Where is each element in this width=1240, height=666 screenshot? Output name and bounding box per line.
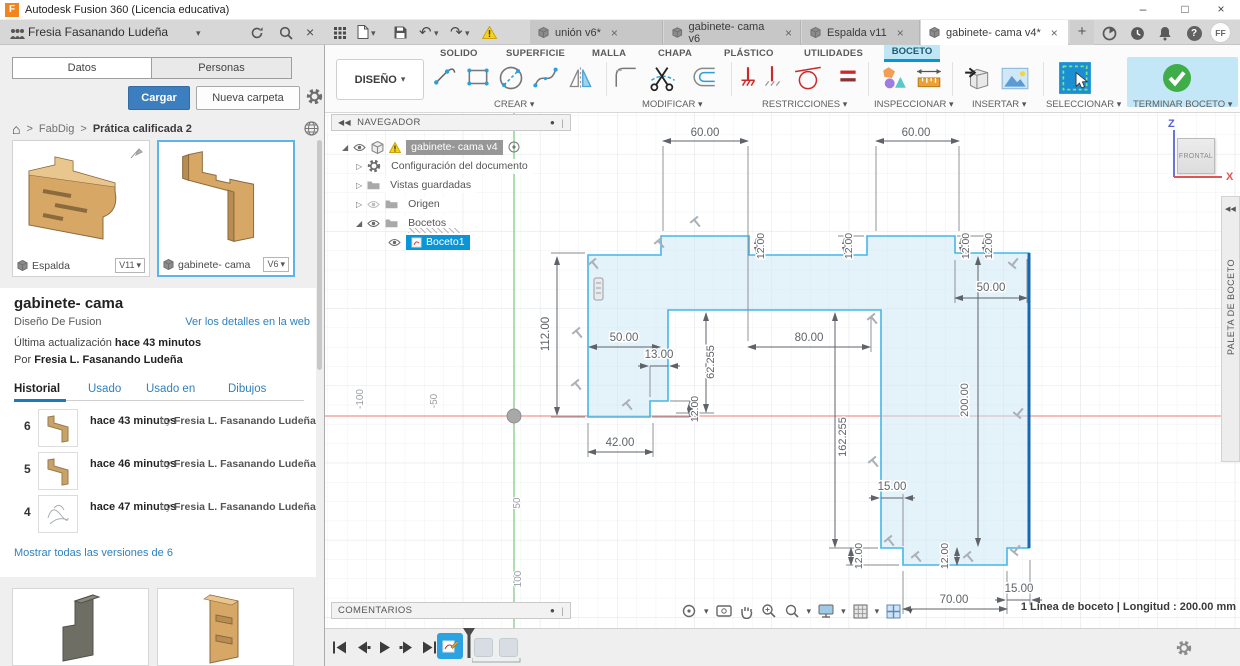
- zoom-fit-icon[interactable]: [784, 603, 800, 619]
- version-dropdown[interactable]: V6▾: [263, 257, 289, 272]
- folder-icon: [385, 199, 398, 209]
- warning-icon[interactable]: [482, 26, 497, 39]
- tab-historial[interactable]: Historial: [14, 383, 60, 395]
- version-thumbnail: [38, 495, 78, 533]
- chevron-down-icon[interactable]: ▾: [807, 606, 812, 617]
- folder-icon: [367, 180, 380, 190]
- project-item-thumbnail[interactable]: [157, 588, 294, 666]
- navigator-item-label[interactable]: Origen: [403, 197, 445, 212]
- account-menu[interactable]: Fresia Fasanando Ludeña: [28, 25, 168, 39]
- dim-label[interactable]: 50.00: [977, 282, 1006, 294]
- circle-tool-icon[interactable]: [497, 64, 525, 92]
- version-author: by Fresia L. Fasanando Ludeña: [160, 415, 316, 427]
- rectangle-tool-icon[interactable]: [465, 64, 491, 90]
- fixed-constraint-ruler-icon: [594, 278, 603, 300]
- close-tab-icon[interactable]: ×: [785, 26, 792, 40]
- chevron-down-icon[interactable]: ▾: [465, 28, 470, 39]
- timeline-ghost-feature[interactable]: [499, 638, 518, 657]
- comments-label: COMENTARIOS: [338, 605, 412, 616]
- cube-icon: [672, 27, 683, 38]
- boceto-tab-underline: [884, 59, 940, 62]
- image-icon[interactable]: [1000, 64, 1030, 92]
- dim-label[interactable]: 13.00: [645, 349, 674, 361]
- redo-icon[interactable]: ↷: [450, 23, 463, 41]
- navigator-header[interactable]: ◀◀ NAVEGADOR ● |: [331, 114, 571, 131]
- timeline-sketch-feature[interactable]: [437, 633, 463, 659]
- version-row[interactable]: 4 hace 47 minutos by Fresia L. Fasanando…: [0, 493, 316, 536]
- version-row[interactable]: 6 hace 43 minutos by Fresia L. Fasanando…: [0, 407, 316, 450]
- expand-palette-icon[interactable]: ◀◀: [1225, 205, 1236, 213]
- sketch-icon: [411, 237, 422, 248]
- viewcube-x-axis-label: X: [1226, 171, 1233, 183]
- help-icon[interactable]: ?: [1184, 23, 1204, 43]
- cube-icon: [17, 260, 28, 271]
- view-navigation-toolbar: ▾ ▾ ▾ ▾ ▾: [681, 603, 913, 619]
- collapsed-arrow-icon[interactable]: ▷: [356, 200, 362, 209]
- measure-icon[interactable]: [915, 64, 943, 92]
- breadcrumb-current[interactable]: Prática calificada 2: [93, 123, 192, 135]
- dim-label[interactable]: 60.00: [902, 127, 931, 139]
- doc-tab-union[interactable]: unión v6* ×: [530, 20, 663, 45]
- sketch-palette-strip[interactable]: ◀◀ PALETA DE BOCETO: [1221, 196, 1240, 462]
- chevron-down-icon: ▾: [196, 28, 201, 39]
- dim-label[interactable]: 12.00: [755, 233, 767, 259]
- tab-personas[interactable]: Personas: [151, 57, 292, 79]
- dim-label[interactable]: 42.00: [606, 437, 635, 449]
- navigator-item-sketch1[interactable]: Boceto1: [406, 235, 470, 250]
- save-icon[interactable]: [394, 26, 407, 39]
- app-grid-icon[interactable]: [334, 27, 346, 39]
- settings-gear-icon[interactable]: [306, 88, 323, 105]
- ribbon-tab-chapa[interactable]: CHAPA: [658, 48, 692, 59]
- dim-label[interactable]: 162.255: [837, 417, 849, 457]
- version-thumbnail: [38, 409, 78, 447]
- doc-tab-gabinete-v6[interactable]: gabinete- cama v6 ×: [664, 20, 801, 45]
- visibility-eye-icon[interactable]: [367, 219, 380, 228]
- doc-tab-espalda[interactable]: Espalda v11 ×: [802, 20, 920, 45]
- pan-hand-icon[interactable]: [739, 604, 754, 619]
- breadcrumb-sep: >: [80, 123, 86, 135]
- green-check-icon: [1161, 62, 1193, 94]
- group-terminar-menu[interactable]: TERMINAR BOCETO ▾: [1133, 99, 1232, 110]
- breadcrumb-root[interactable]: FabDig: [39, 123, 74, 135]
- project-item-thumbnail[interactable]: [12, 588, 149, 666]
- line-tool-icon[interactable]: [433, 64, 459, 90]
- ribbon-tab-boceto-active[interactable]: BOCETO: [884, 45, 940, 59]
- divider: [952, 62, 953, 96]
- doc-tab-label: gabinete- cama v4*: [946, 27, 1041, 39]
- flag-icon: [129, 147, 143, 159]
- inspect-shapes-icon[interactable]: [880, 64, 908, 92]
- web-details-link[interactable]: Ver los detalles en la web: [150, 316, 310, 328]
- chevron-down-icon[interactable]: ▾: [371, 28, 376, 39]
- dim-label[interactable]: 12.00: [939, 543, 951, 569]
- divider: [731, 62, 732, 96]
- sketch-palette-label: PALETA DE BOCETO: [1226, 259, 1236, 355]
- close-tab-icon[interactable]: ×: [897, 26, 904, 40]
- selection-status: 1 Línea de boceto | Longitud : 200.00 mm: [930, 601, 1236, 613]
- warning-icon: [389, 142, 401, 153]
- ribbon-tab-solido[interactable]: SOLIDO: [440, 48, 478, 59]
- fillet-tool-icon[interactable]: [613, 64, 639, 90]
- dim-label[interactable]: 80.00: [795, 332, 824, 344]
- tab-usado[interactable]: Usado: [88, 383, 121, 395]
- notifications-bell-icon[interactable]: [1155, 23, 1175, 43]
- group-modificar-menu[interactable]: MODIFICAR ▾: [642, 99, 702, 110]
- undo-icon[interactable]: ↶: [419, 23, 432, 41]
- dim-label[interactable]: 12.00: [983, 233, 995, 259]
- job-status-icon[interactable]: [1127, 23, 1147, 43]
- navigator-root-row[interactable]: ◢ gabinete- cama v4: [342, 138, 520, 156]
- cube-icon: [538, 27, 549, 38]
- navigator-item-label[interactable]: Configuración del documento: [386, 159, 533, 174]
- doc-tab-label: Espalda v11: [827, 27, 887, 39]
- chevron-down-icon[interactable]: ▾: [841, 606, 846, 617]
- new-folder-button[interactable]: Nueva carpeta: [196, 86, 300, 110]
- axis-tick-label: 100: [513, 570, 524, 587]
- extensions-icon[interactable]: [1099, 23, 1119, 43]
- dim-label[interactable]: 12.00: [853, 543, 865, 569]
- grid-settings-icon[interactable]: [853, 604, 868, 619]
- offset-tool-icon[interactable]: [690, 64, 720, 90]
- workspace-selector[interactable]: DISEÑO ▾: [336, 59, 424, 100]
- dim-label[interactable]: 62.255: [705, 345, 717, 379]
- equal-constraint-icon[interactable]: [836, 64, 860, 88]
- timeline-ghost-feature[interactable]: [474, 638, 493, 657]
- navigator-row-origin[interactable]: ▷ Origen: [356, 195, 445, 213]
- timeline-go-start-button[interactable]: [332, 640, 350, 655]
- detail-title: gabinete- cama: [14, 295, 123, 312]
- look-at-icon[interactable]: [716, 604, 732, 618]
- fix-constraint-icon[interactable]: [737, 64, 759, 90]
- divider: [868, 62, 869, 96]
- axis-tick-label: -100: [355, 389, 366, 409]
- project-item-gabinete-cama[interactable]: gabinete- cama V6▾: [157, 140, 295, 277]
- gabinete-thumbnail: [159, 142, 291, 254]
- navigator-row-sketch1[interactable]: Boceto1: [388, 233, 470, 251]
- doc-tab-gabinete-v4-active[interactable]: gabinete- cama v4* ×: [921, 20, 1068, 45]
- avatar[interactable]: FF: [1210, 22, 1231, 43]
- version-author: by Fresia L. Fasanando Ludeña: [160, 458, 316, 470]
- origin-point[interactable]: [507, 409, 521, 423]
- workspace-label: DISEÑO: [355, 74, 397, 86]
- search-icon[interactable]: [279, 26, 293, 40]
- gear-icon: [367, 159, 381, 173]
- sketch1-label: Boceto1: [426, 235, 465, 250]
- scrollbar[interactable]: [317, 140, 322, 370]
- close-panel-icon[interactable]: ×: [306, 24, 314, 40]
- title-bar: F Autodesk Fusion 360 (Licencia educativ…: [0, 0, 1240, 20]
- globe-icon[interactable]: [304, 121, 319, 136]
- display-settings-icon[interactable]: [818, 604, 834, 618]
- close-tab-icon[interactable]: ×: [1051, 26, 1058, 40]
- project-item-espalda[interactable]: Espalda V11▾: [12, 140, 150, 277]
- author-line: Por Fresia L. Fasanando Ludeña: [14, 354, 183, 366]
- tab-usado-en[interactable]: Usado en: [146, 383, 195, 395]
- mirror-tool-icon[interactable]: [567, 64, 594, 91]
- panel-menu-icon[interactable]: ●: [550, 118, 555, 127]
- panel-menu-icon[interactable]: ●: [550, 606, 555, 615]
- visibility-eye-off-icon[interactable]: [367, 200, 380, 209]
- show-all-versions-link[interactable]: Mostrar todas las versiones de 6: [14, 547, 173, 559]
- file-menu-icon[interactable]: [357, 25, 369, 39]
- item-name: gabinete- cama: [178, 259, 250, 271]
- select-tool-icon[interactable]: [1057, 60, 1093, 96]
- group-insertar-menu[interactable]: INSERTAR ▾: [972, 99, 1026, 110]
- navigator-root-item[interactable]: gabinete- cama v4: [406, 140, 502, 155]
- breadcrumb: ⌂ > FabDig > Prática calificada 2: [12, 121, 192, 137]
- ribbon-tab-superficie[interactable]: SUPERFICIE: [506, 48, 565, 59]
- fusion360-window: F Autodesk Fusion 360 (Licencia educativ…: [0, 0, 1240, 666]
- ribbon-tab-malla[interactable]: MALLA: [592, 48, 626, 59]
- divider: [1043, 62, 1044, 96]
- chevron-down-icon[interactable]: ▾: [908, 606, 913, 617]
- insert-icon[interactable]: [963, 64, 993, 92]
- divider: [606, 62, 607, 96]
- group-crear-menu[interactable]: CREAR ▾: [494, 99, 534, 110]
- group-seleccionar-menu[interactable]: SELECCIONAR ▾: [1046, 99, 1121, 110]
- viewports-icon[interactable]: [886, 604, 901, 619]
- app-title: Autodesk Fusion 360 (Licencia educativa): [25, 4, 229, 16]
- chevron-down-icon[interactable]: ▾: [704, 606, 709, 617]
- panel-handle[interactable]: |: [561, 606, 564, 616]
- trim-scissors-icon[interactable]: [648, 64, 678, 92]
- version-dropdown[interactable]: V11▾: [115, 258, 145, 273]
- dim-label[interactable]: 15.00: [878, 481, 907, 493]
- espalda-thumbnail: [13, 141, 147, 253]
- timeline-settings-gear-icon[interactable]: [1176, 640, 1192, 656]
- chevron-down-icon: ▾: [401, 74, 406, 85]
- group-restricciones-menu[interactable]: RESTRICCIONES ▾: [762, 99, 847, 110]
- dim-label[interactable]: 12.00: [843, 233, 855, 259]
- tangent-constraint-icon[interactable]: [793, 64, 825, 92]
- navigator-title: NAVEGADOR: [357, 117, 421, 128]
- refresh-icon[interactable]: [250, 26, 264, 40]
- navigator-row-doc-settings[interactable]: ▷ Configuración del documento: [356, 157, 533, 175]
- version-number: 6: [24, 419, 31, 433]
- updated-line: Última actualización hace 43 minutos: [14, 337, 201, 349]
- close-window-button[interactable]: ×: [1206, 0, 1236, 19]
- comments-bar[interactable]: COMENTARIOS ● |: [331, 602, 571, 619]
- visibility-eye-icon[interactable]: [388, 238, 401, 247]
- collapsed-arrow-icon[interactable]: ▷: [356, 162, 362, 171]
- data-panel: Datos Personas Cargar Nueva carpeta ⌂ > …: [0, 45, 325, 666]
- version-author: by Fresia L. Fasanando Ludeña: [160, 501, 316, 513]
- zoom-in-icon[interactable]: [761, 603, 777, 619]
- dim-label[interactable]: 12.00: [689, 396, 701, 422]
- chevron-down-icon[interactable]: ▾: [875, 606, 880, 617]
- timeline-play-button[interactable]: [377, 640, 395, 655]
- activate-radio-icon[interactable]: [508, 141, 520, 153]
- cube-icon: [371, 141, 384, 154]
- minimize-button[interactable]: –: [1128, 0, 1158, 19]
- navigator-item-label[interactable]: Vistas guardadas: [385, 178, 476, 193]
- expand-icon[interactable]: ◢: [356, 219, 362, 228]
- item-name: Espalda: [32, 260, 70, 272]
- home-icon[interactable]: ⌂: [12, 121, 20, 137]
- spline-tool-icon[interactable]: [532, 64, 559, 91]
- dim-label[interactable]: 112.00: [540, 317, 552, 351]
- version-number: 4: [24, 505, 31, 519]
- dim-label[interactable]: 60.00: [691, 127, 720, 139]
- sketch-feature-icon: [442, 638, 458, 654]
- dim-label[interactable]: 12.00: [960, 233, 972, 259]
- detail-subtitle: Diseño De Fusion: [14, 316, 101, 328]
- timeline-step-back-button[interactable]: [355, 640, 373, 655]
- version-thumbnail: [38, 452, 78, 490]
- tab-datos[interactable]: Datos: [12, 57, 152, 79]
- axis-tick-label: 50: [512, 497, 523, 509]
- active-tab-underline: [14, 399, 66, 402]
- doc-tab-label: unión v6*: [555, 27, 601, 39]
- timeline-step-forward-button[interactable]: [399, 640, 417, 655]
- tab-dibujos[interactable]: Dibujos: [228, 383, 266, 395]
- cube-icon: [929, 27, 940, 38]
- collapsed-arrow-icon[interactable]: ▷: [356, 181, 362, 190]
- visibility-eye-icon[interactable]: [353, 143, 366, 152]
- chevron-down-icon[interactable]: ▾: [434, 28, 439, 39]
- expand-icon[interactable]: ◢: [342, 143, 348, 152]
- ribbon-tab-utilidades[interactable]: UTILIDADES: [804, 48, 863, 59]
- restore-button[interactable]: □: [1170, 0, 1200, 19]
- new-tab-button[interactable]: +: [1070, 20, 1094, 45]
- cube-icon: [163, 259, 174, 270]
- ribbon-tab-plastico[interactable]: PLÁSTICO: [724, 48, 774, 59]
- upload-button[interactable]: Cargar: [128, 86, 190, 110]
- group-inspeccionar-menu[interactable]: INSPECCIONAR ▾: [874, 99, 954, 110]
- version-number: 5: [24, 462, 31, 476]
- close-tab-icon[interactable]: ×: [611, 26, 618, 40]
- panel-handle[interactable]: |: [561, 118, 564, 128]
- folder-icon: [385, 218, 398, 228]
- viewcube-front-face[interactable]: FRONTAL: [1177, 138, 1215, 174]
- navigator-row-saved-views[interactable]: ▷ Vistas guardadas: [356, 176, 476, 194]
- timeline-group-bracket: [472, 658, 522, 663]
- dim-label[interactable]: 15.00: [1005, 583, 1034, 595]
- vertical-constraint-icon[interactable]: [762, 64, 782, 90]
- orbit-icon[interactable]: [681, 603, 697, 619]
- cube-icon: [810, 27, 821, 38]
- version-row[interactable]: 5 hace 46 minutos by Fresia L. Fasanando…: [0, 450, 316, 493]
- axis-tick-label: -50: [429, 393, 440, 408]
- collapse-icon[interactable]: ◀◀: [338, 118, 351, 127]
- dim-label[interactable]: 50.00: [610, 332, 639, 344]
- breadcrumb-sep: >: [26, 123, 32, 135]
- dim-label[interactable]: 200.00: [959, 383, 971, 417]
- doc-tab-label: gabinete- cama v6: [689, 21, 775, 45]
- fusion-logo-icon: F: [5, 3, 19, 17]
- people-icon: [9, 28, 25, 39]
